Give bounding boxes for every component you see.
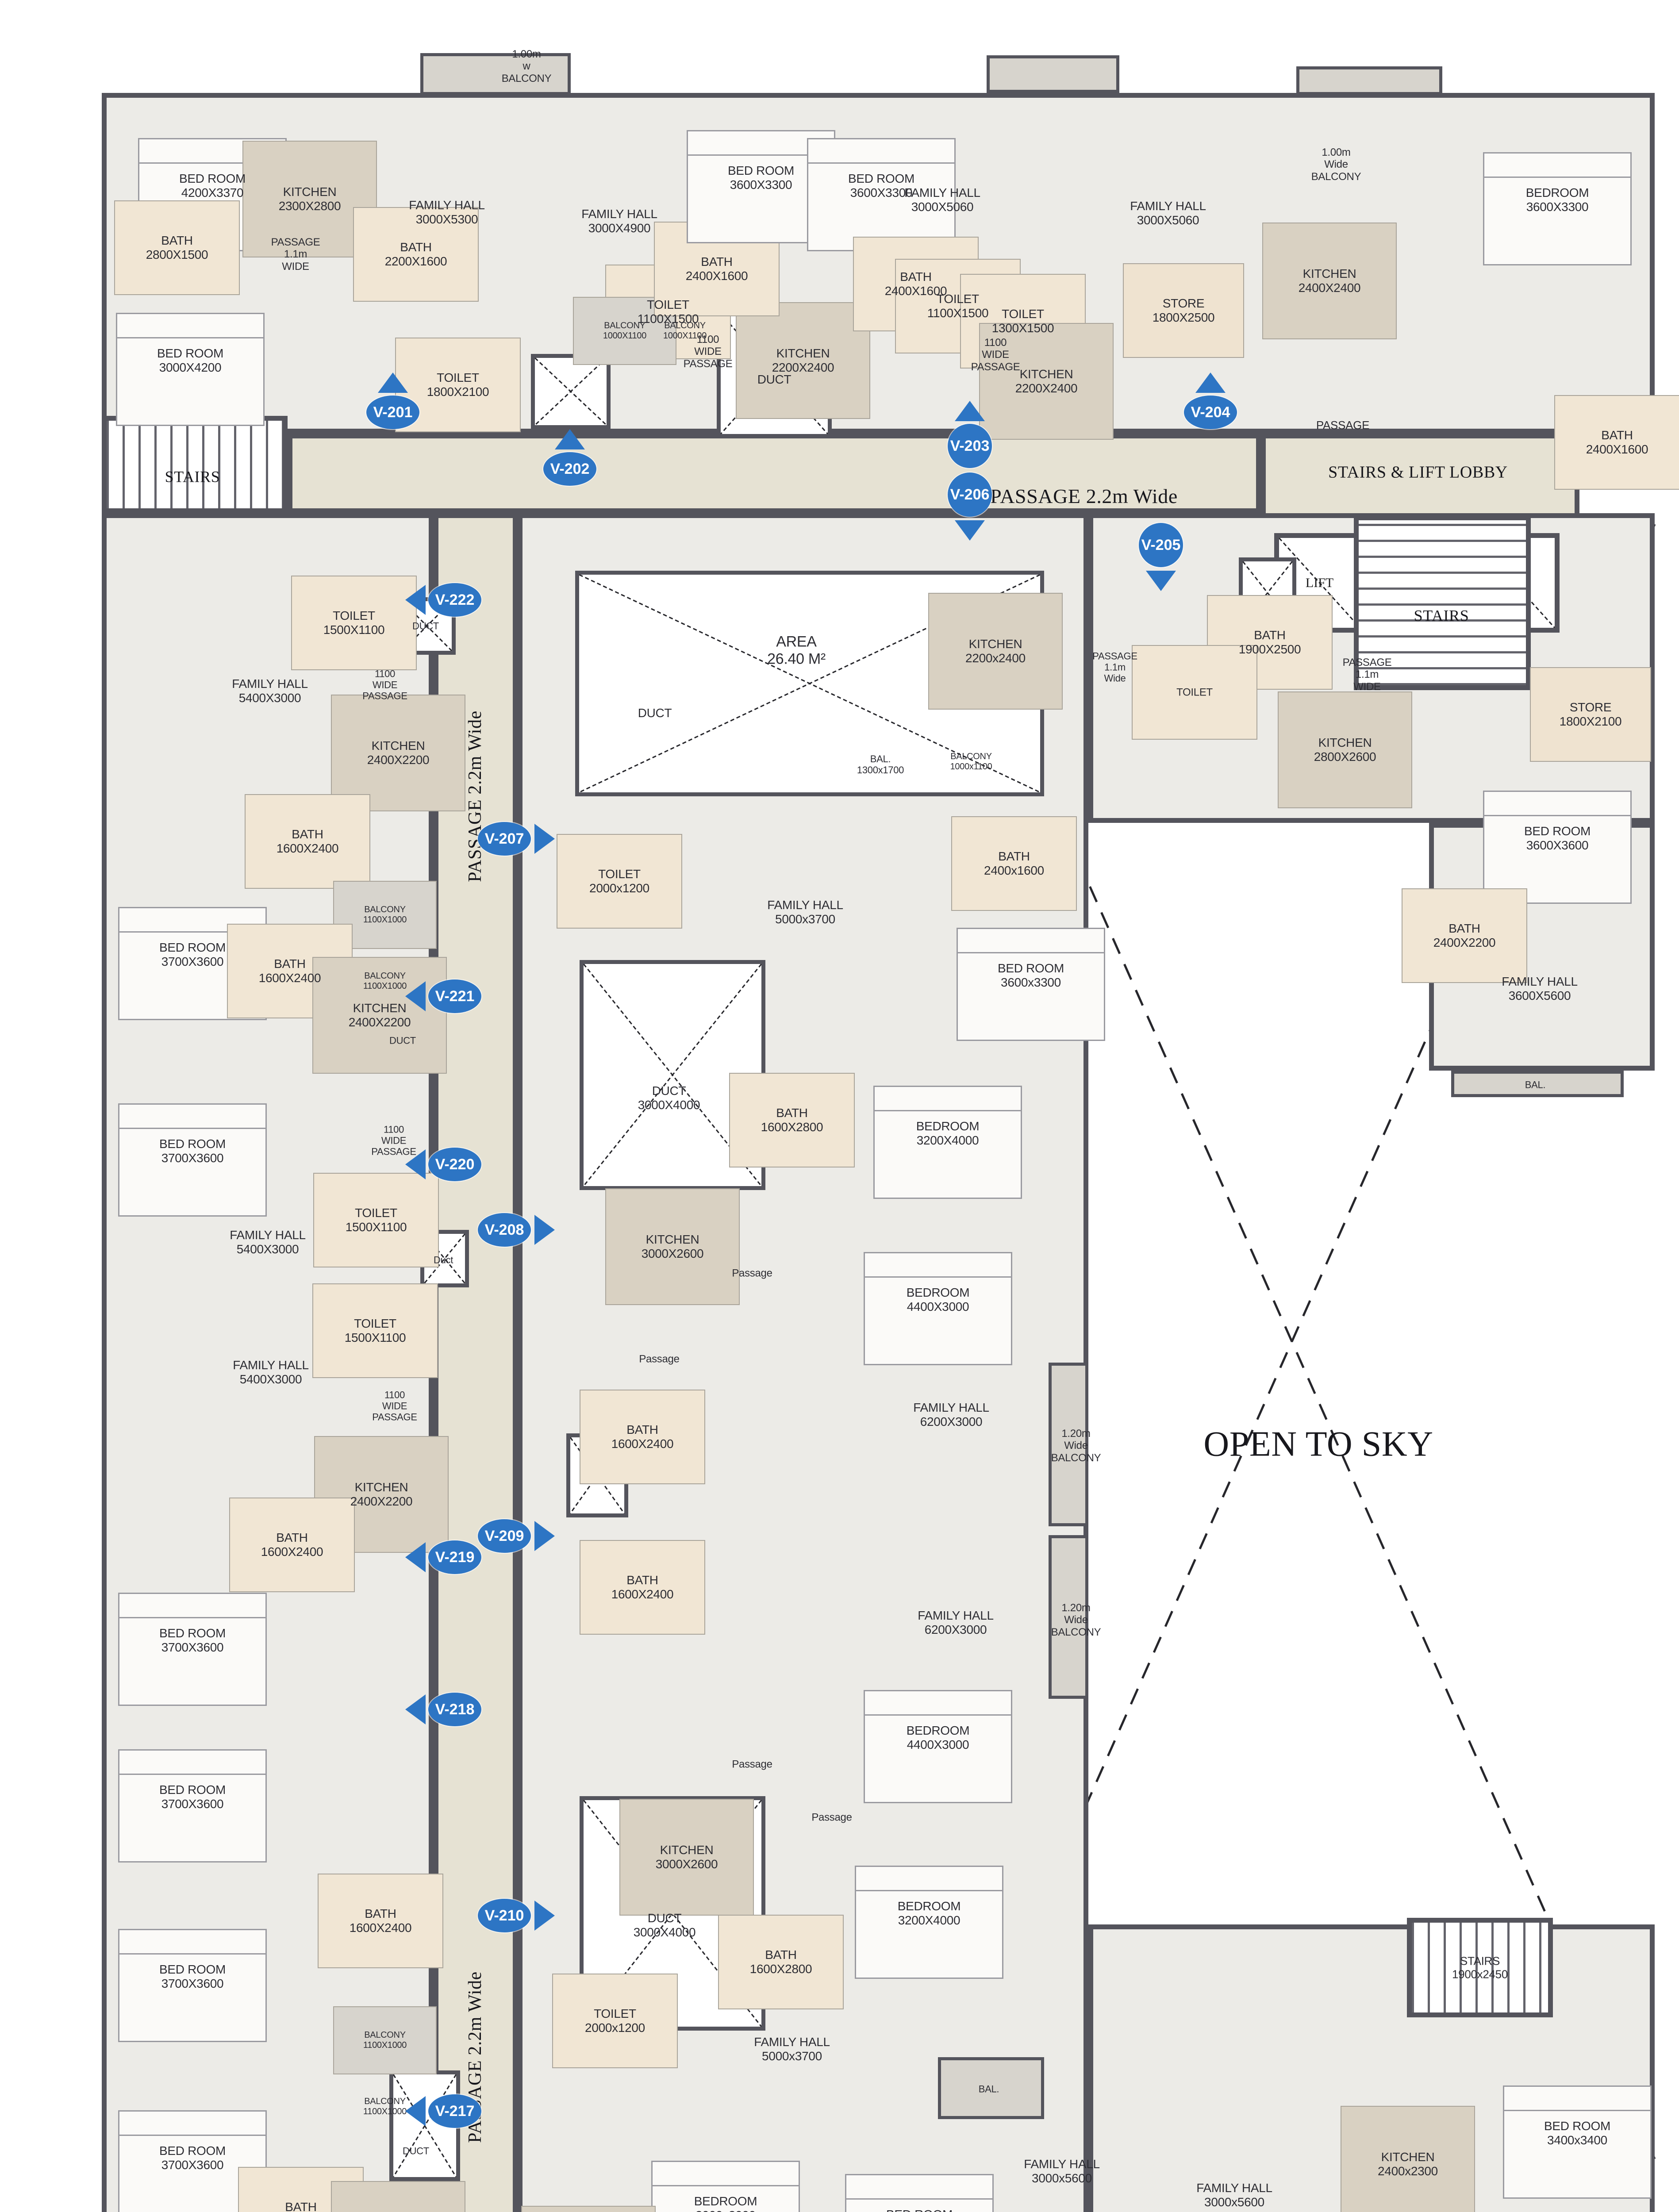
room-label: KITCHEN 2800X2600 [1314,736,1376,764]
room-label: FAMILY HALL 3000X4900 [581,207,657,235]
room-label: BALCONY 1100X1000 [363,905,407,925]
room-label: KITCHEN 2400X2200 [367,739,430,767]
room-label: FAMILY HALL 6200X3000 [918,1609,994,1637]
viewpoint-badge-v-206[interactable]: V-206 [948,472,992,517]
badge-arrow-icon [955,401,985,421]
room-label: BALCONY 1100X1000 [363,971,407,991]
room-label: TOILET [1176,686,1213,698]
badge-arrow-icon [534,1901,555,1931]
room-label: BED ROOM 3700X3600 [159,1137,226,1165]
room-label: BED ROOM 3700X3600 [159,1626,226,1655]
apartment-block [987,55,1119,93]
room-label: BATH 1600X2400 [350,1907,412,1935]
room-label: FAMILY HALL 3600X5600 [1502,975,1578,1003]
badge-label: V-206 [950,486,990,503]
viewpoint-badge-v-207[interactable]: V-207 [478,822,531,856]
room-label: STAIRS [1414,607,1469,625]
room-label: KITCHEN 2200X2400 [1015,367,1078,396]
room-label: BED ROOM 3000X4200 [157,346,223,375]
room-label: BATH 2200X1600 [385,240,447,269]
badge-arrow-icon [405,1694,426,1724]
room-label: STAIRS [165,468,220,486]
badge-label: V-207 [485,830,524,848]
badge-arrow-icon [534,1215,555,1245]
room-label: KITCHEN 2200X2400 [772,346,834,375]
room-label: OPEN TO SKY [1203,1424,1433,1464]
room-label: BATH 2400X2200 [1433,922,1496,950]
badge-arrow-icon [405,1542,426,1572]
badge-label: V-219 [435,1549,475,1566]
room-label: BAL. [979,2083,999,2094]
room-label: KITCHEN 2400X2200 [350,1480,413,1509]
room-label: TOILET 1300X1500 [992,307,1054,335]
room-label: Passage [732,1758,772,1770]
room-label: BALCONY 1000X1100 [663,321,707,341]
badge-arrow-icon [405,1149,426,1179]
duct-x-icon [535,358,607,425]
badge-label: V-220 [435,1156,475,1173]
room-label: BATH 1600X2400 [611,1573,674,1601]
apartment-block [1296,66,1442,95]
room-label: AREA 26.40 M² [767,633,826,668]
badge-arrow-icon [1195,373,1226,393]
room-label: BALCONY 1000x1100 [950,752,992,772]
room-label: STORE 1800X2100 [1560,700,1622,729]
badge-label: V-210 [485,1907,524,1924]
room-label: BALCONY 1000X1100 [603,321,646,341]
room-label: BATH 1600X2400 [261,1531,323,1559]
room-label: Passage [732,1267,772,1279]
room-label: BATH 1600X2800 [750,1948,812,1976]
room-label: STAIRS & LIFT LOBBY [1328,463,1508,482]
room-label: BEDROOM 3600X3300 [1526,186,1589,214]
viewpoint-badge-v-201[interactable]: V-201 [366,396,419,429]
room-label: KITCHEN 2300X2800 [279,185,341,213]
viewpoint-badge-v-218[interactable]: V-218 [428,1693,481,1726]
room-label: 1.20m Wide BALCONY [1051,1428,1101,1464]
kitchen-area [521,2206,656,2212]
badge-arrow-icon [405,2096,426,2126]
room-label: BED ROOM 3600X3300 [728,164,794,192]
viewpoint-badge-v-221[interactable]: V-221 [428,979,481,1013]
room-label: BATH 2800X1500 [146,234,208,262]
badge-label: V-221 [435,988,475,1005]
badge-label: V-209 [485,1528,524,1545]
badge-label: V-217 [435,2103,475,2120]
room-label: BATH 2400X1600 [686,255,748,283]
room-label: TOILET 1800X2100 [427,371,489,399]
room-label: KITCHEN 3000X2600 [656,1843,718,1871]
room-label: DUCT [389,1035,416,1046]
room-label: STORE 1800X2500 [1153,296,1215,325]
badge-label: V-202 [550,461,590,478]
room-label: BATH 2400X1600 [1586,428,1648,457]
room-label: BED ROOM 3600x3300 [886,2208,953,2212]
room-label: PASSAGE 2.2m Wide [990,485,1178,508]
badge-label: V-208 [485,1221,524,1239]
room-label: BEDROOM 4400X3000 [907,1286,970,1314]
room-label: BEDROOM 3900x3000 [694,2194,757,2212]
badge-arrow-icon [405,981,426,1011]
room-label: 1100 WIDE PASSAGE [362,668,407,701]
kitchen-area [331,2181,465,2212]
room-label: DUCT [638,706,672,720]
room-label: FAMILY HALL 3000X5060 [1130,199,1206,227]
room-label: FAMILY HALL 5400X3000 [232,677,308,705]
room-label: BED ROOM 4200X3370 [179,172,246,200]
room-label: BEDROOM 3200X4000 [898,1899,961,1928]
room-label: PASSAGE [1316,419,1369,432]
room-label: FAMILY HALL 5000x3700 [754,2035,830,2063]
room-label: DUCT 3000X4000 [634,1911,696,1939]
room-label: STAIRS 1900x2450 [1452,1955,1508,1981]
room-label: BED ROOM 3400x3400 [1544,2119,1610,2147]
room-label: TOILET 1100X1500 [927,292,988,320]
room-label: BATH 1600X2400 [259,957,321,985]
badge-label: V-218 [435,1701,475,1718]
room-label: FAMILY HALL 3000x5600 [1024,2157,1100,2185]
viewpoint-badge-v-204[interactable]: V-204 [1184,396,1237,429]
duct-shaft [531,354,611,429]
room-label: Duct [434,1254,453,1265]
room-label: 1100 WIDE PASSAGE [372,1389,417,1422]
badge-arrow-icon [1146,571,1176,591]
room-label: 1.00m w BALCONY [502,48,552,84]
room-label: TOILET 1500X1100 [345,1317,406,1345]
badge-arrow-icon [405,585,426,615]
room-label: BATH 2400x1600 [984,849,1044,878]
room-label: BAL. 1300x1700 [857,753,904,776]
room-label: PASSAGE 1.1m WIDE [271,236,320,273]
room-label: BED ROOM 3600x3300 [998,961,1064,990]
badge-arrow-icon [534,824,555,854]
room-label: Passage [639,1353,679,1365]
viewpoint-badge-v-202[interactable]: V-202 [543,452,596,486]
room-label: BEDROOM 4400X3000 [907,1724,970,1752]
room-label: FAMILY HALL 3000X5300 [409,198,485,227]
room-label: FAMILY HALL 3000X5060 [904,186,980,214]
badge-label: V-201 [373,404,413,421]
room-label: Passage [811,1811,852,1823]
viewpoint-badge-v-219[interactable]: V-219 [428,1540,481,1574]
stairs-block [102,416,288,513]
room-label: BED ROOM 3700X3600 [159,1783,226,1811]
room-label: BATH 1600X2800 [761,1106,823,1134]
badge-label: V-203 [950,438,990,455]
room-label: FAMILY HALL 5400X3000 [233,1358,309,1386]
badge-arrow-icon [955,520,985,541]
room-label: KITCHEN 2400X2200 [349,1001,411,1029]
room-label: TOILET 2000x1200 [585,2007,645,2035]
room-label: TOILET 1500X1100 [323,609,384,637]
room-label: KITCHEN 2400x2300 [1378,2150,1438,2178]
badge-arrow-icon [555,429,585,449]
room-label: BEDROOM 3200X4000 [916,1119,980,1148]
badge-arrow-icon [378,373,408,393]
viewpoint-badge-v-220[interactable]: V-220 [428,1148,481,1181]
badge-label: V-204 [1191,404,1230,421]
viewpoint-badge-v-203[interactable]: V-203 [948,424,992,468]
room-label: PASSAGE 1.1m Wide [1092,650,1137,684]
badge-arrow-icon [534,1521,555,1551]
viewpoint-badge-v-210[interactable]: V-210 [478,1899,531,1932]
room-label: BAL. [1525,1079,1546,1090]
room-label: TOILET 1500X1100 [346,1206,407,1234]
badge-label: V-205 [1141,537,1181,554]
viewpoint-badge-v-205[interactable]: V-205 [1139,523,1183,567]
room-label: TOILET 2000x1200 [589,867,649,895]
room-label: 1100 WIDE PASSAGE [971,337,1020,373]
room-label: KITCHEN 3000X2600 [642,1233,704,1261]
room-label: BALCONY 1100X1000 [363,2030,407,2051]
viewpoint-badge-v-217[interactable]: V-217 [428,2094,481,2128]
room-label: 1.00m Wide BALCONY [1311,146,1361,183]
room-label: DUCT 3000X4000 [638,1084,700,1112]
room-label: BALCONY 1100X1000 [363,2097,407,2117]
room-label: BATH 1600X2400 [277,827,339,856]
viewpoint-badge-v-209[interactable]: V-209 [478,1519,531,1553]
room-label: BED ROOM 3700X3600 [159,2144,226,2172]
room-label: BED ROOM 3700X3600 [159,1962,226,1991]
room-label: FAMILY HALL 3000x5600 [1196,2181,1272,2209]
room-label: FAMILY HALL 5400X3000 [230,1228,306,1256]
room-label: KITCHEN 2200x2400 [965,637,1026,665]
viewpoint-badge-v-208[interactable]: V-208 [478,1213,531,1247]
room-label: BATH 1900X2500 [1239,628,1301,657]
room-label: BATH 1600X2400 [611,1423,674,1451]
room-label: 1.20m Wide BALCONY [1051,1602,1101,1638]
room-label: DUCT [757,373,791,387]
room-label: PASSAGE 2.2m Wide [465,710,486,882]
bed-icon [845,2174,994,2212]
room-label: PASSAGE 1.1m WIDE [1343,657,1392,693]
room-label: DUCT [403,2145,429,2156]
room-label: BED ROOM 3700X3600 [159,941,226,969]
room-label: BATH 1600X2400 [270,2200,332,2212]
viewpoint-badge-v-222[interactable]: V-222 [428,583,481,617]
room-label: FAMILY HALL 6200X3000 [913,1401,989,1429]
room-label: FAMILY HALL 5000x3700 [767,898,843,926]
floor-plan: LIFTLIFTLIFTLIFTLIFTLIFT1.00m w BALCONYB… [0,0,1679,2212]
badge-label: V-222 [435,591,475,609]
room-label: KITCHEN 2400X2400 [1299,267,1361,295]
room-label: DUCT [412,620,439,631]
room-label: BED ROOM 3600X3600 [1524,824,1591,853]
